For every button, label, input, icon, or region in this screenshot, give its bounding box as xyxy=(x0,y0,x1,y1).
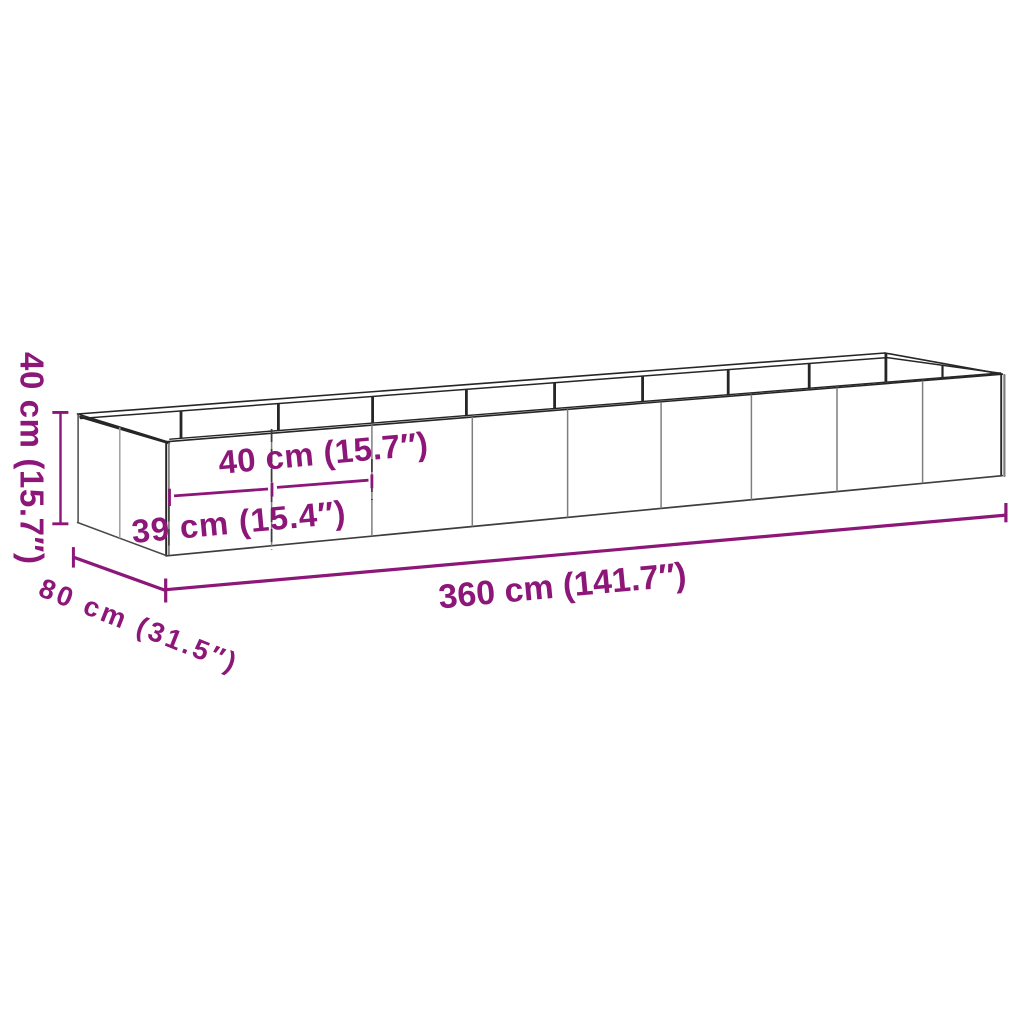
svg-text:360 cm (141.7″): 360 cm (141.7″) xyxy=(437,556,688,617)
svg-text:40 cm (15.7″): 40 cm (15.7″) xyxy=(14,352,51,565)
svg-text:80 cm (31.5″): 80 cm (31.5″) xyxy=(35,572,244,679)
